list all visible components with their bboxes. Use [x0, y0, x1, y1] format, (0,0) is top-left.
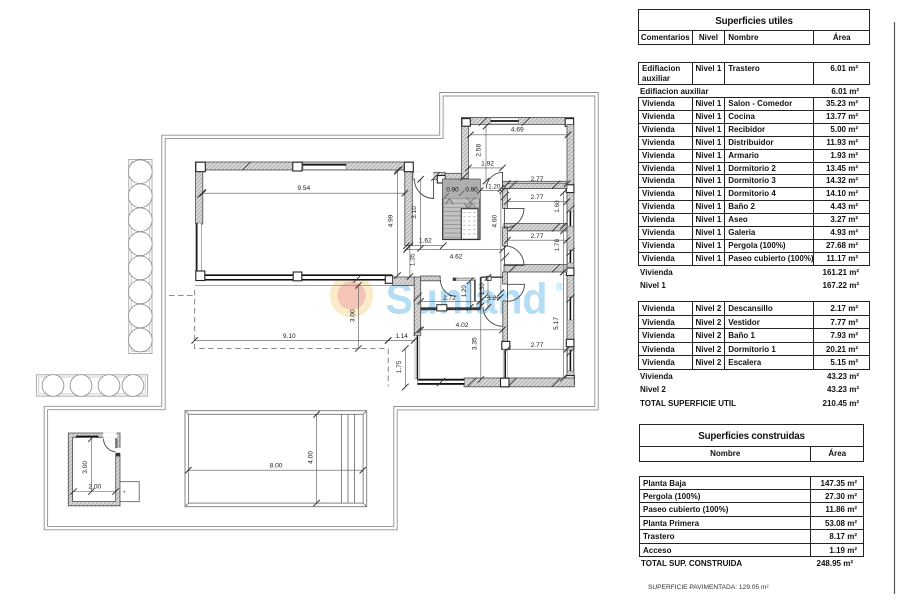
svg-text:3.10: 3.10 [411, 206, 418, 219]
svg-text:4.99: 4.99 [387, 214, 394, 227]
svg-text:1.20: 1.20 [461, 285, 468, 298]
svg-text:2.77: 2.77 [531, 342, 544, 349]
svg-text:1.14: 1.14 [395, 333, 408, 340]
svg-text:1.35: 1.35 [410, 253, 417, 266]
svg-text:8.00: 8.00 [270, 463, 283, 470]
svg-text:2.72: 2.72 [443, 295, 456, 302]
svg-text:4.60: 4.60 [492, 214, 499, 227]
svg-text:3.00: 3.00 [82, 461, 89, 474]
svg-text:1.92: 1.92 [481, 160, 494, 167]
svg-text:1.20: 1.20 [488, 183, 501, 190]
svg-text:4.02: 4.02 [456, 322, 469, 329]
svg-text:1.30: 1.30 [479, 283, 486, 296]
svg-text:9.10: 9.10 [283, 333, 296, 340]
svg-text:4.69: 4.69 [511, 127, 524, 134]
svg-text:2.00: 2.00 [88, 483, 101, 490]
svg-text:®: ® [556, 282, 564, 294]
svg-text:0.90: 0.90 [465, 187, 478, 194]
svg-text:1.60: 1.60 [554, 200, 561, 213]
svg-text:5.17: 5.17 [553, 317, 560, 330]
svg-text:1.20: 1.20 [488, 295, 501, 302]
svg-text:3.35: 3.35 [472, 337, 479, 350]
svg-text:2.77: 2.77 [531, 176, 544, 183]
svg-text:0.90: 0.90 [446, 187, 459, 194]
svg-text:9.54: 9.54 [297, 185, 310, 192]
svg-text:1.62: 1.62 [419, 238, 432, 245]
svg-text:1.75: 1.75 [396, 360, 403, 373]
svg-text:3.00: 3.00 [349, 309, 356, 322]
svg-text:2.77: 2.77 [531, 233, 544, 240]
svg-text:2.58: 2.58 [476, 144, 483, 157]
svg-text:1.78: 1.78 [554, 239, 561, 252]
svg-text:2.77: 2.77 [531, 194, 544, 201]
svg-text:4.62: 4.62 [450, 253, 463, 260]
svg-text:4.00: 4.00 [308, 451, 315, 464]
